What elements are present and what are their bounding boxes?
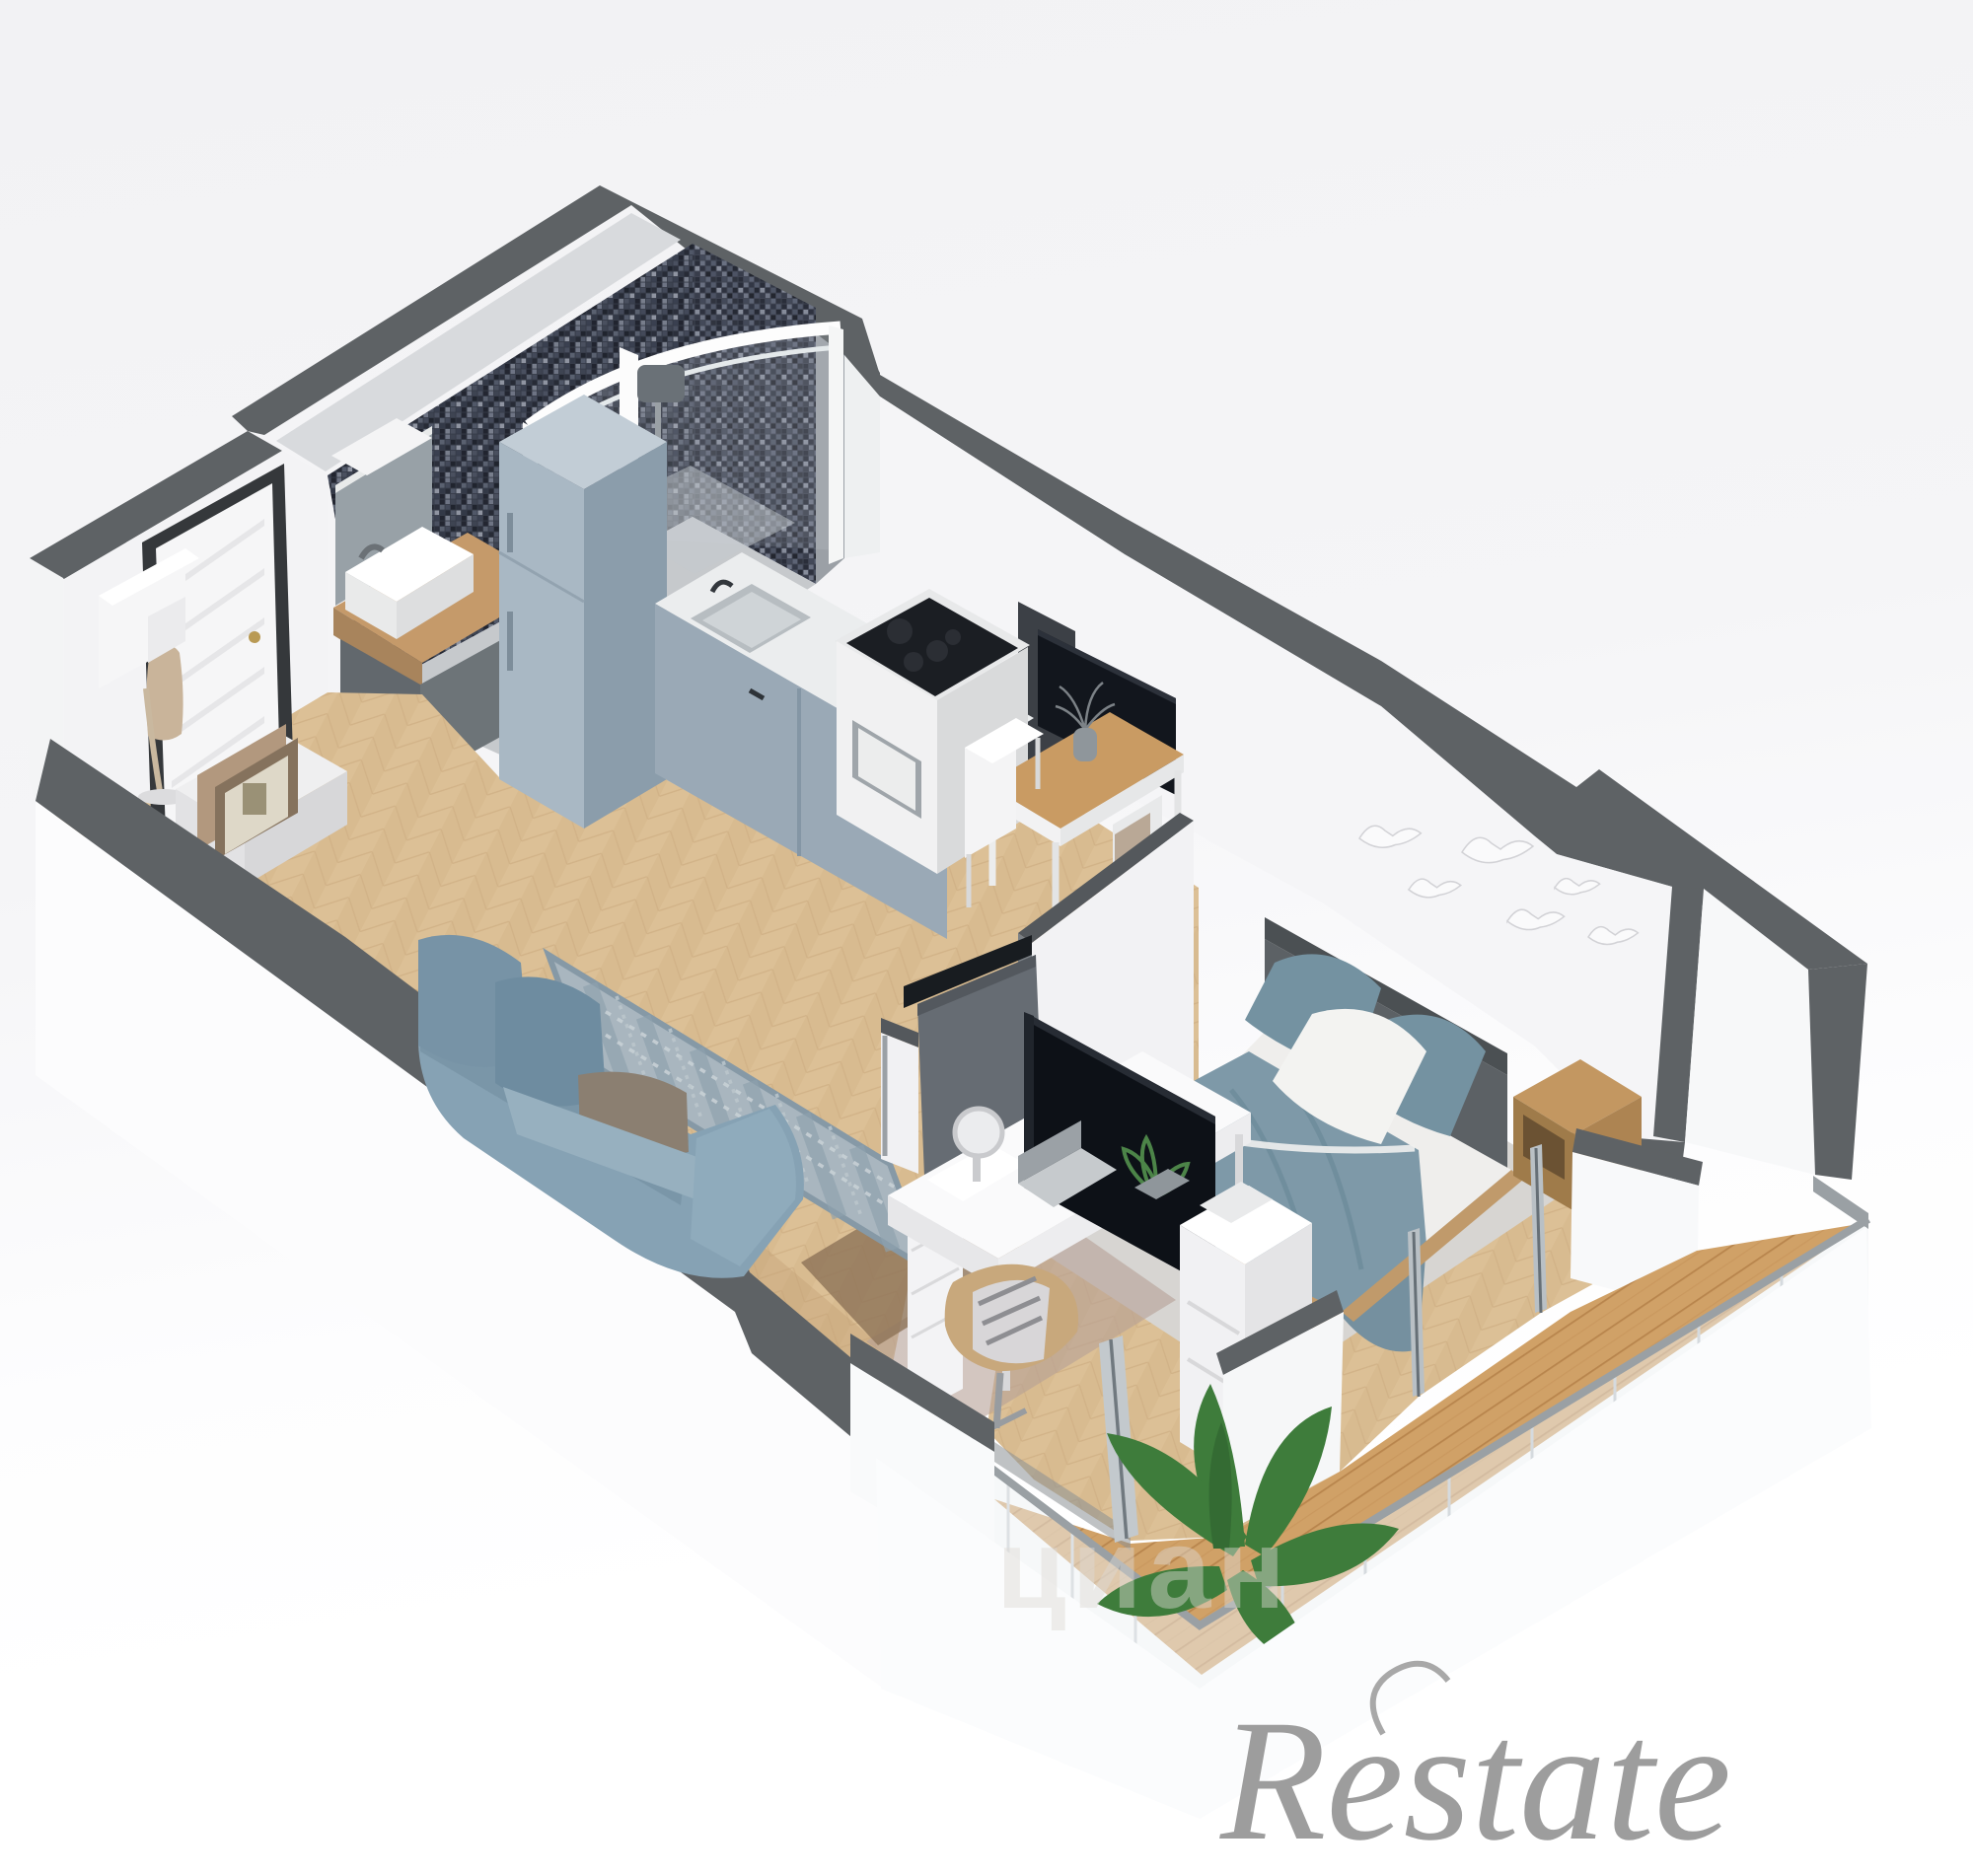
svg-text:Restate: Restate (1219, 1685, 1731, 1876)
svg-text:циан: циан (996, 1506, 1291, 1632)
